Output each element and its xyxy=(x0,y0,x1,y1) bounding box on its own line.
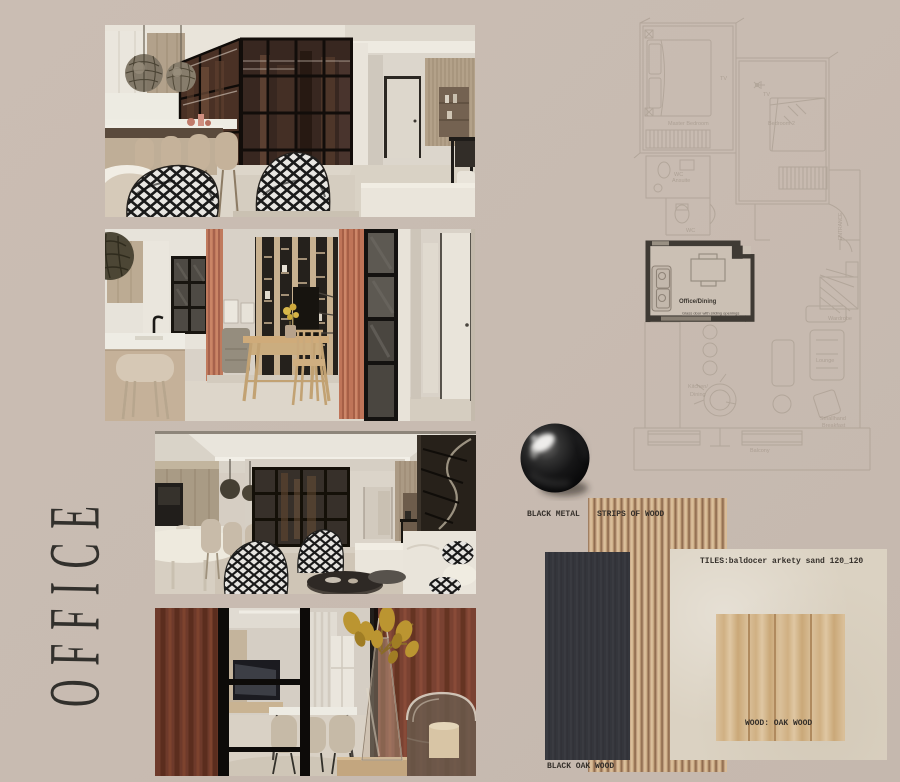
svg-text:Office/Dining: Office/Dining xyxy=(679,299,717,305)
svg-text:Kitchen/: Kitchen/ xyxy=(688,384,708,390)
svg-text:TV: TV xyxy=(763,92,770,98)
svg-text:Glass door with sliding openin: Glass door with sliding openings xyxy=(682,311,739,316)
svg-text:Smallhand: Smallhand xyxy=(820,416,846,422)
svg-text:Dining: Dining xyxy=(690,392,706,398)
svg-text:TV: TV xyxy=(720,76,727,82)
svg-text:ENTRANCE: ENTRANCE xyxy=(838,212,844,240)
svg-text:Ansuite: Ansuite xyxy=(672,178,690,184)
svg-text:Master Bedroom: Master Bedroom xyxy=(668,121,709,127)
svg-text:WC: WC xyxy=(686,228,695,234)
svg-text:Bedroom 2: Bedroom 2 xyxy=(768,121,795,127)
svg-text:Breakfast: Breakfast xyxy=(822,423,846,429)
svg-text:Lounge: Lounge xyxy=(816,358,834,364)
svg-text:Balcony: Balcony xyxy=(750,448,770,454)
svg-text:Wardrobe: Wardrobe xyxy=(828,316,852,322)
